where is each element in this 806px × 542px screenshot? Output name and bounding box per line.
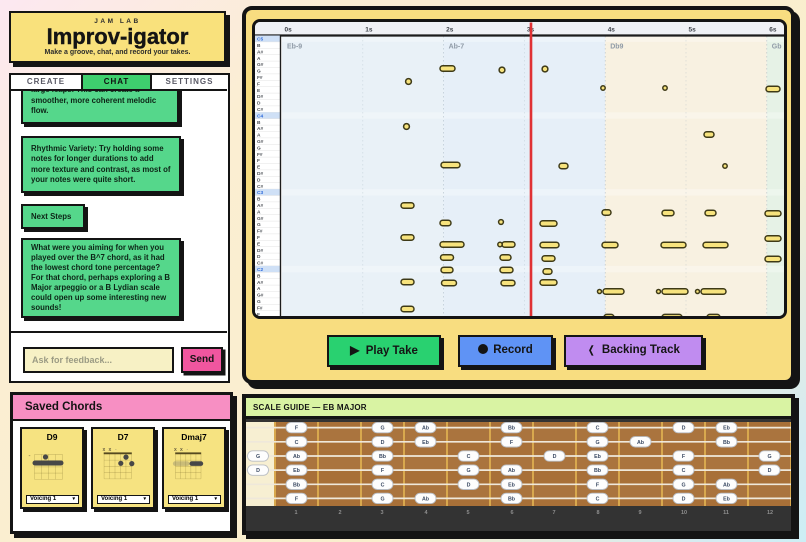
svg-text:Ab: Ab [422,497,430,503]
svg-text:D: D [768,468,772,474]
svg-text:Db9: Db9 [610,44,623,51]
svg-text:G: G [681,482,685,488]
svg-text:G: G [767,454,771,460]
svg-text:x: x [180,447,183,453]
svg-text:x: x [109,447,112,453]
svg-text:x: x [174,447,177,453]
svg-text:G: G [256,454,260,460]
svg-text:F: F [257,312,260,316]
svg-text:C: C [467,454,471,460]
svg-text:4s: 4s [608,27,616,34]
svg-text:0s: 0s [285,27,293,34]
svg-text:Eb: Eb [594,454,602,460]
svg-text:Ab: Ab [508,468,516,474]
svg-text:-: - [115,447,117,453]
svg-text:C: C [596,497,600,503]
svg-text:Ab: Ab [293,454,301,460]
svg-text:Ab: Ab [422,426,430,432]
svg-text:-: - [29,454,31,460]
svg-text:Ab: Ab [637,440,645,446]
svg-text:Bb: Bb [723,440,731,446]
svg-text:6s: 6s [769,27,777,34]
svg-text:Eb: Eb [422,440,430,446]
svg-text:D: D [682,497,686,503]
svg-text:C: C [596,426,600,432]
svg-text:2s: 2s [446,27,454,34]
svg-text:1s: 1s [365,27,373,34]
svg-text:C: C [682,468,686,474]
svg-text:Ab-7: Ab-7 [449,44,465,51]
svg-text:G: G [380,426,384,432]
svg-text:Ab: Ab [723,482,731,488]
svg-text:Eb: Eb [293,468,301,474]
svg-text:Bb: Bb [379,454,387,460]
svg-text:D: D [256,468,260,474]
svg-text:G: G [595,440,599,446]
svg-text:D: D [467,482,471,488]
svg-text:G: G [466,468,470,474]
svg-text:D: D [682,426,686,432]
svg-text:Eb: Eb [723,426,731,432]
svg-text:Bb: Bb [508,426,516,432]
svg-text:x: x [103,447,106,453]
svg-text:C: C [295,440,299,446]
svg-text:-: - [187,447,189,453]
svg-text:5s: 5s [689,27,697,34]
svg-text:Bb: Bb [594,468,602,474]
svg-text:G: G [380,497,384,503]
svg-text:Eb: Eb [508,482,516,488]
svg-text:C: C [381,482,385,488]
svg-text:Eb-9: Eb-9 [287,44,302,51]
svg-text:D: D [553,454,557,460]
svg-text:Gb: Gb [772,44,782,51]
svg-text:Eb: Eb [723,497,731,503]
svg-text:Bb: Bb [293,482,301,488]
svg-text:Bb: Bb [508,497,516,503]
svg-text:D: D [381,440,385,446]
